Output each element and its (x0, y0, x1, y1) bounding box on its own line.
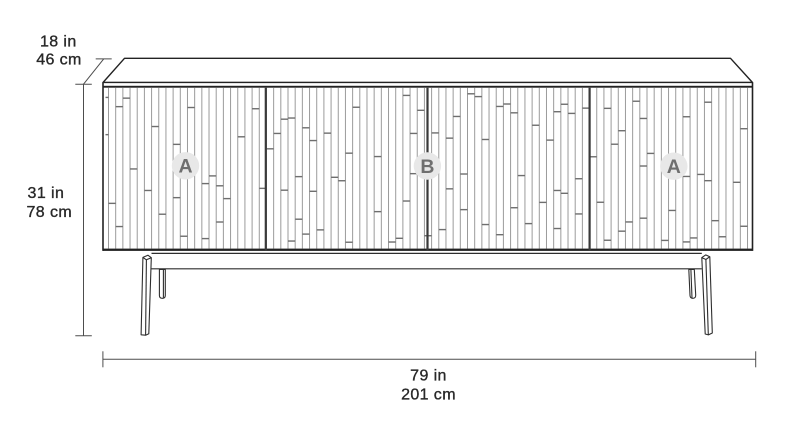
svg-text:201 cm: 201 cm (401, 386, 456, 403)
svg-text:A: A (667, 156, 681, 178)
svg-text:78 cm: 78 cm (27, 204, 73, 221)
svg-text:A: A (178, 156, 192, 178)
svg-text:46 cm: 46 cm (36, 52, 82, 69)
svg-text:18 in: 18 in (40, 33, 77, 50)
svg-text:31 in: 31 in (28, 185, 65, 202)
svg-text:B: B (420, 156, 434, 178)
svg-text:79 in: 79 in (410, 368, 447, 385)
